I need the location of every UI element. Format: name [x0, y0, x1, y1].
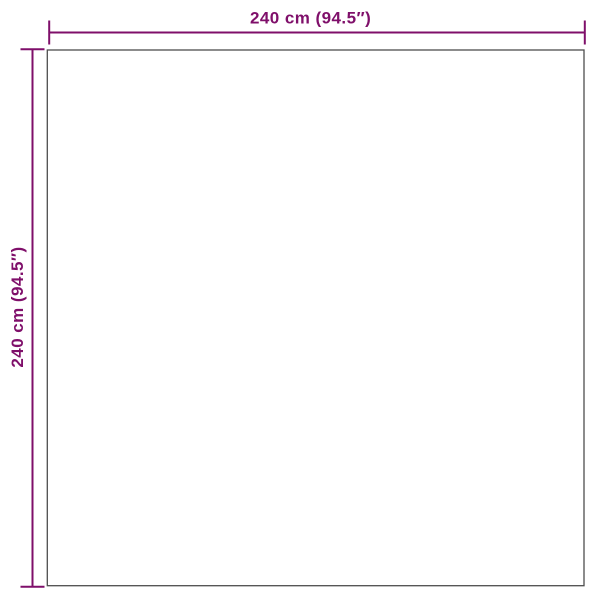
svg-text:240 cm (94.5″): 240 cm (94.5″) — [8, 246, 27, 367]
svg-text:240 cm (94.5″): 240 cm (94.5″) — [250, 9, 371, 28]
